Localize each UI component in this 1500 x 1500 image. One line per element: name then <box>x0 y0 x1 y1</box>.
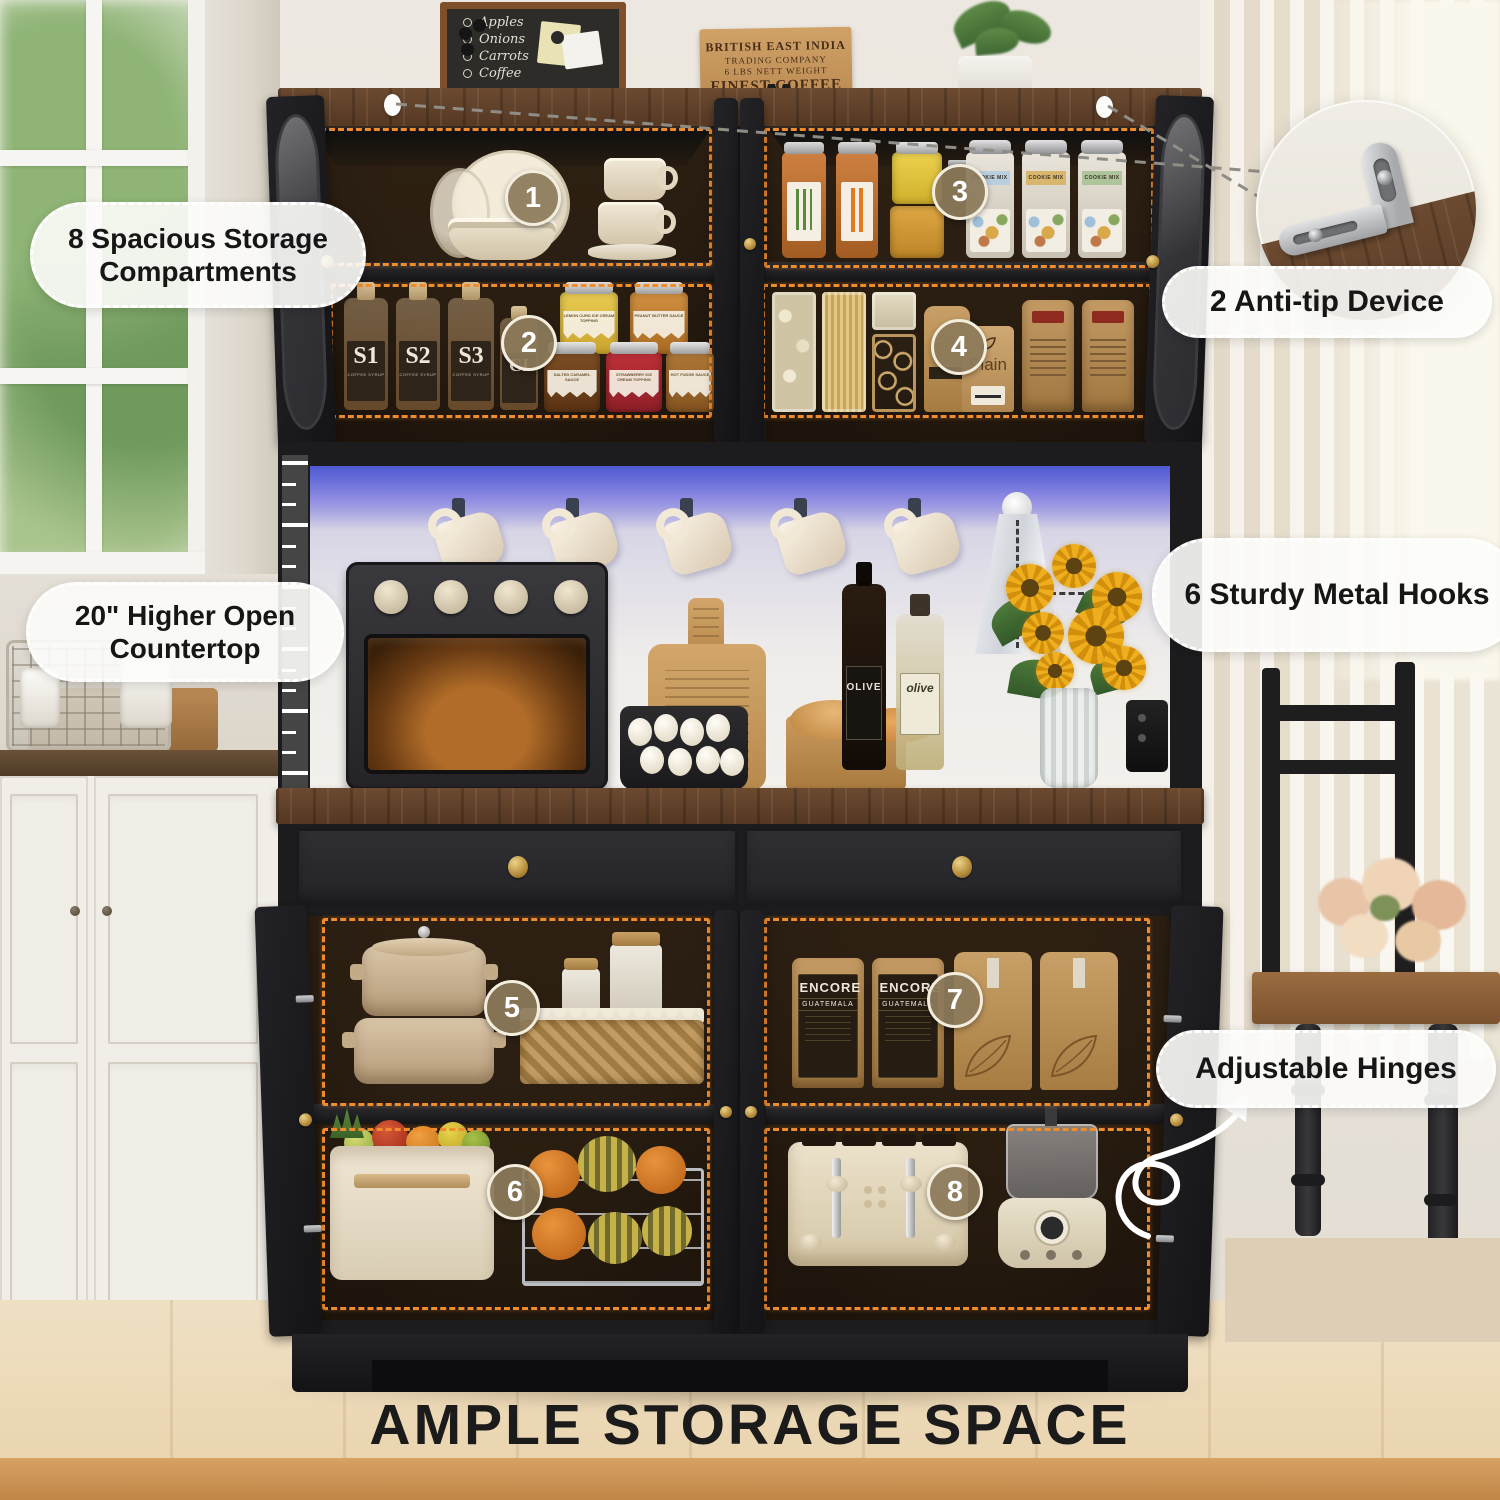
curly-arrow-icon <box>1119 1110 1240 1236</box>
product-infographic: Apples Onions Carrots Coffee BRITISH EAS… <box>0 0 1500 1500</box>
badge-1: 1 <box>505 170 561 226</box>
badge-7: 7 <box>927 972 983 1028</box>
badge-8: 8 <box>927 1164 983 1220</box>
badge-4: 4 <box>931 319 987 375</box>
badge-2: 2 <box>501 315 557 371</box>
badge-3: 3 <box>932 164 988 220</box>
callout-anti-tip: 2 Anti-tip Device <box>1162 266 1492 338</box>
callout-compartments: 8 Spacious Storage Compartments <box>30 202 366 308</box>
callout-hinges: Adjustable Hinges <box>1156 1030 1496 1108</box>
badge-6: 6 <box>487 1164 543 1220</box>
callout-countertop: 20" Higher Open Countertop <box>26 582 344 682</box>
page-title: AMPLE STORAGE SPACE <box>0 1392 1500 1458</box>
badge-5: 5 <box>484 980 540 1036</box>
callout-hooks: 6 Sturdy Metal Hooks <box>1152 538 1500 652</box>
